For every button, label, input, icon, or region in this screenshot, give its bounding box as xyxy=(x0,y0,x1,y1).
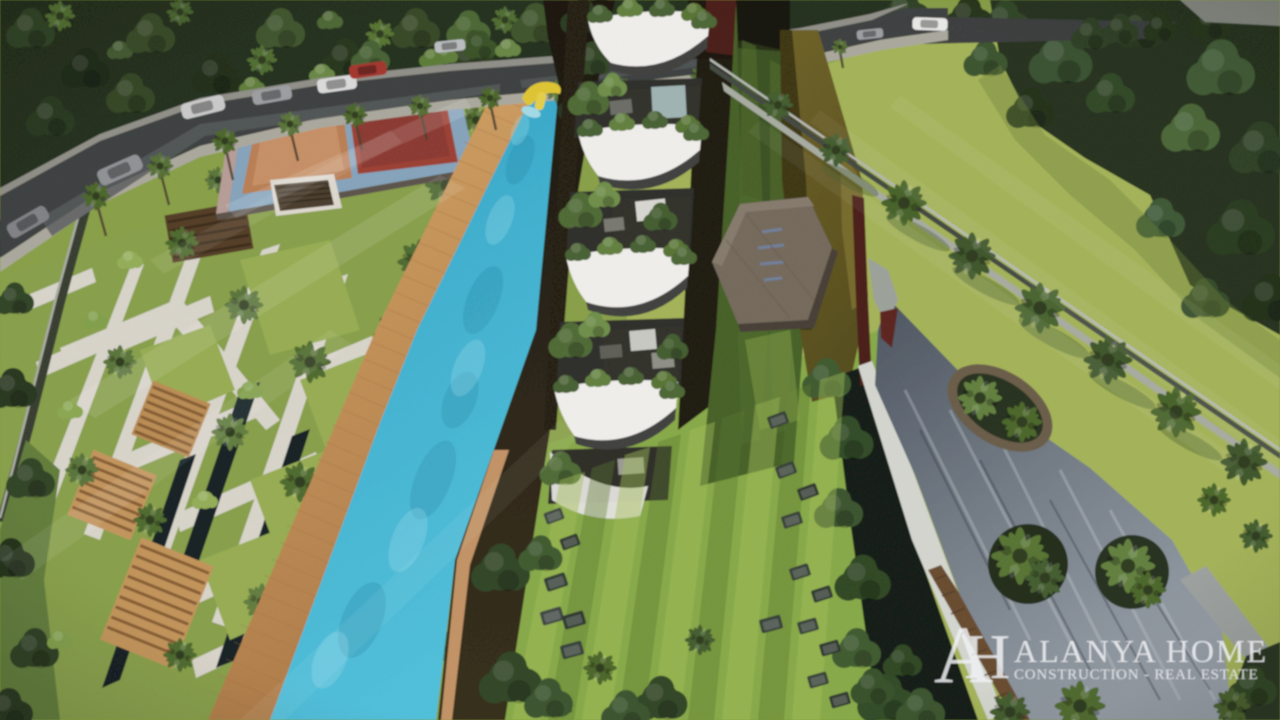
svg-text:ALANYA HOME: ALANYA HOME xyxy=(1014,633,1268,669)
svg-text:H: H xyxy=(964,621,1010,692)
svg-text:CONSTRUCTION - REAL ESTATE: CONSTRUCTION - REAL ESTATE xyxy=(1014,667,1258,683)
